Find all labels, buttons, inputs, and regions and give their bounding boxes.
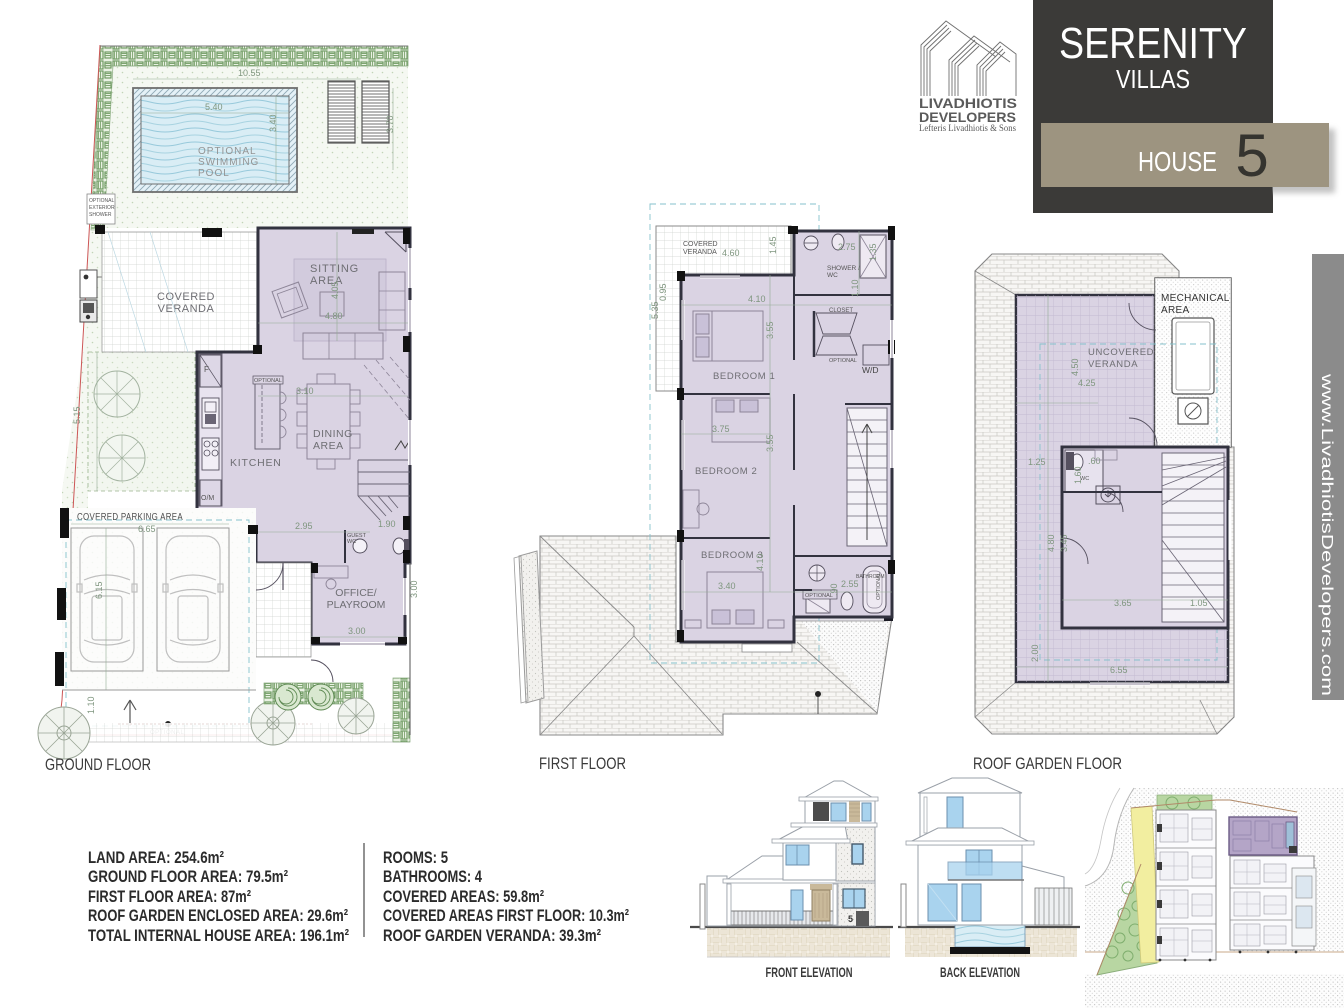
svg-text:W/D: W/D <box>862 365 879 375</box>
svg-text:ROOF GARDEN VERANDA: 39.3m²: ROOF GARDEN VERANDA: 39.3m² <box>383 926 601 945</box>
svg-text:5.35: 5.35 <box>650 301 660 319</box>
svg-text:4.50: 4.50 <box>1070 358 1080 376</box>
svg-text:VERANDA: VERANDA <box>683 249 717 256</box>
svg-text:OPTIONAL: OPTIONAL <box>89 198 115 204</box>
svg-text:GROUND FLOOR AREA: 79.5m²: GROUND FLOOR AREA: 79.5m² <box>88 867 288 886</box>
svg-text:COVERED: COVERED <box>683 241 718 248</box>
svg-text:5: 5 <box>848 914 853 924</box>
svg-text:4.60: 4.60 <box>722 248 740 258</box>
svg-text:5.40: 5.40 <box>205 102 223 112</box>
svg-text:1.90: 1.90 <box>378 519 396 529</box>
svg-text:3.75: 3.75 <box>712 424 730 434</box>
svg-text:OPTIONAL: OPTIONAL <box>198 146 257 157</box>
svg-text:ROOMS: 5: ROOMS: 5 <box>383 848 448 867</box>
svg-text:BATHROOMS: 4: BATHROOMS: 4 <box>383 867 482 886</box>
svg-text:4.25: 4.25 <box>1078 378 1096 388</box>
svg-text:6.65: 6.65 <box>138 524 156 534</box>
svg-text:POOL: POOL <box>198 168 230 179</box>
svg-text:TOTAL INTERNAL HOUSE AREA: 196: TOTAL INTERNAL HOUSE AREA: 196.1m² <box>88 926 349 945</box>
svg-text:VILLAS: VILLAS <box>1116 64 1190 94</box>
svg-text:BEDROOM 1: BEDROOM 1 <box>713 371 775 382</box>
svg-text:VERANDA: VERANDA <box>1088 359 1138 370</box>
svg-text:BEDROOM 2: BEDROOM 2 <box>695 466 757 477</box>
svg-text:PLAYROOM: PLAYROOM <box>327 599 386 611</box>
svg-text:2.95: 2.95 <box>295 521 313 531</box>
svg-text:4.80: 4.80 <box>1046 534 1056 552</box>
svg-text:F: F <box>204 365 209 374</box>
svg-text:SERENITY: SERENITY <box>1059 19 1247 68</box>
svg-text:1.35: 1.35 <box>868 243 878 261</box>
svg-text:5: 5 <box>1235 122 1268 189</box>
svg-text:COVERED PARKING AREA: COVERED PARKING AREA <box>77 511 183 523</box>
svg-text:ROOF GARDEN ENCLOSED AREA: 29.: ROOF GARDEN ENCLOSED AREA: 29.6m² <box>88 906 348 925</box>
svg-text:5.15: 5.15 <box>72 406 82 424</box>
svg-text:COVERED: COVERED <box>157 291 215 303</box>
svg-text:1.25: 1.25 <box>1028 457 1046 467</box>
svg-text:UNCOVERED: UNCOVERED <box>1088 347 1154 358</box>
svg-text:4.05: 4.05 <box>330 281 340 299</box>
svg-text:3.40: 3.40 <box>718 581 736 591</box>
svg-text:.60: .60 <box>1088 456 1101 466</box>
svg-text:SHOWER: SHOWER <box>89 212 112 218</box>
svg-text:1.60: 1.60 <box>1073 466 1083 484</box>
svg-text:Lefteris Livadhiotis & Sons: Lefteris Livadhiotis & Sons <box>919 123 1016 133</box>
svg-text:2.75: 2.75 <box>838 242 856 252</box>
svg-text:3.40: 3.40 <box>268 114 278 132</box>
svg-text:VERANDA: VERANDA <box>158 303 215 315</box>
svg-text:1.45: 1.45 <box>768 236 778 254</box>
svg-text:HOUSE: HOUSE <box>1138 146 1217 177</box>
svg-text:FIRST FLOOR: FIRST FLOOR <box>539 754 626 773</box>
svg-text:LAND AREA: 254.6m²: LAND AREA: 254.6m² <box>88 848 224 867</box>
svg-text:1.10: 1.10 <box>86 696 96 714</box>
svg-text:6.55: 6.55 <box>1110 665 1128 675</box>
svg-text:AREA: AREA <box>313 440 344 452</box>
svg-text:BACK ELEVATION: BACK ELEVATION <box>940 964 1020 980</box>
svg-text:1.10: 1.10 <box>850 279 860 297</box>
svg-text:3.45: 3.45 <box>1059 534 1069 552</box>
svg-text:3.70: 3.70 <box>385 115 395 133</box>
svg-text:COVERED AREAS FIRST FLOOR: 10.: COVERED AREAS FIRST FLOOR: 10.3m² <box>383 906 629 925</box>
svg-text:10.55: 10.55 <box>238 68 261 78</box>
svg-text:FRONT ELEVATION: FRONT ELEVATION <box>766 964 853 980</box>
svg-text:3.65: 3.65 <box>1114 598 1132 608</box>
svg-text:2.55: 2.55 <box>841 579 859 589</box>
svg-text:0.95: 0.95 <box>658 283 668 301</box>
svg-text:4.10: 4.10 <box>748 294 766 304</box>
svg-text:.90: .90 <box>829 583 839 596</box>
svg-text:ROOF GARDEN FLOOR: ROOF GARDEN FLOOR <box>973 754 1122 773</box>
svg-text:4.10: 4.10 <box>755 553 765 571</box>
svg-text:6.15: 6.15 <box>94 581 104 599</box>
svg-text:SITTING: SITTING <box>310 263 359 275</box>
svg-text:MECHANICAL: MECHANICAL <box>1161 293 1230 304</box>
svg-text:DINING: DINING <box>313 428 353 440</box>
svg-text:OPTIONAL: OPTIONAL <box>829 358 857 364</box>
svg-text:OPTIONAL: OPTIONAL <box>876 572 882 600</box>
svg-text:3.10: 3.10 <box>296 386 314 396</box>
svg-text:WC: WC <box>827 272 838 279</box>
svg-text:EXTERIOR: EXTERIOR <box>89 205 115 211</box>
svg-text:OFFICE/: OFFICE/ <box>335 587 376 599</box>
svg-text:4.80: 4.80 <box>325 311 343 321</box>
svg-text:2.00: 2.00 <box>1030 644 1040 662</box>
svg-text:O/M: O/M <box>201 495 214 502</box>
svg-text:3.00: 3.00 <box>348 626 366 636</box>
svg-text:AREA: AREA <box>1161 305 1189 316</box>
svg-text:www.LivadhiotisDevelopers.com: www.LivadhiotisDevelopers.com <box>1318 373 1335 696</box>
svg-text:1.05: 1.05 <box>1190 598 1208 608</box>
svg-text:WC: WC <box>347 539 356 545</box>
svg-text:OPTIONAL: OPTIONAL <box>254 378 282 384</box>
svg-text:GROUND FLOOR: GROUND FLOOR <box>45 755 151 774</box>
svg-text:SHOWER /: SHOWER / <box>827 265 860 272</box>
svg-text:SWIMMING: SWIMMING <box>198 157 259 168</box>
svg-text:KITCHEN: KITCHEN <box>230 457 282 469</box>
svg-text:FIRST FLOOR AREA: 87m²: FIRST FLOOR AREA: 87m² <box>88 887 251 906</box>
svg-text:COVERED AREAS: 59.8m²: COVERED AREAS: 59.8m² <box>383 887 544 906</box>
